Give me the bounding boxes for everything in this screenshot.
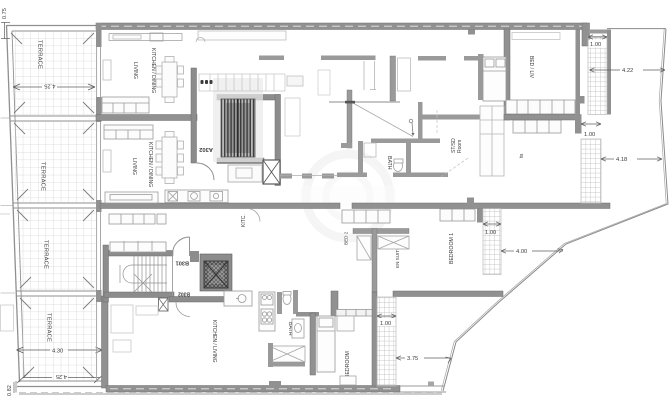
svg-text:EN SUITE: EN SUITE bbox=[395, 247, 400, 268]
svg-text:1.00: 1.00 bbox=[380, 321, 391, 327]
svg-text:TERRACE: TERRACE bbox=[40, 162, 46, 191]
svg-text:BED / LIV: BED / LIV bbox=[528, 56, 534, 79]
svg-text:B301: B301 bbox=[176, 260, 189, 266]
svg-text:BEDROOM: BEDROOM bbox=[345, 351, 351, 378]
svg-text:TERRACE: TERRACE bbox=[46, 313, 52, 342]
svg-text:1.00: 1.00 bbox=[584, 132, 595, 138]
svg-text:4.25: 4.25 bbox=[56, 373, 67, 379]
svg-text:LIVING: LIVING bbox=[131, 158, 137, 175]
svg-text:KITCHEN / LIVING: KITCHEN / LIVING bbox=[211, 320, 217, 363]
svg-text:4.00: 4.00 bbox=[516, 249, 527, 255]
svg-text:TERRACE: TERRACE bbox=[43, 240, 49, 269]
svg-text:BEDROOM 1: BEDROOM 1 bbox=[449, 233, 455, 264]
svg-text:B302: B302 bbox=[178, 291, 190, 297]
svg-text:4.18: 4.18 bbox=[616, 157, 627, 163]
svg-text:BED 2: BED 2 bbox=[344, 231, 349, 245]
svg-text:0.75: 0.75 bbox=[2, 8, 8, 19]
svg-text:1.00: 1.00 bbox=[485, 230, 496, 236]
svg-text:KITCHEN / DINING: KITCHEN / DINING bbox=[150, 48, 156, 93]
svg-text:KITC.: KITC. bbox=[241, 214, 247, 227]
svg-text:TERRACE: TERRACE bbox=[37, 40, 43, 69]
svg-text:LIVING: LIVING bbox=[132, 62, 138, 79]
svg-text:KITCHEN / DINING: KITCHEN / DINING bbox=[147, 142, 153, 187]
svg-text:4.30: 4.30 bbox=[52, 348, 63, 354]
svg-text:Room: Room bbox=[457, 140, 463, 153]
svg-text:BATH: BATH bbox=[386, 156, 392, 170]
svg-text:0.82: 0.82 bbox=[7, 385, 13, 396]
svg-text:A302: A302 bbox=[199, 146, 213, 152]
svg-text:1.00: 1.00 bbox=[590, 42, 601, 48]
svg-text:fB: fB bbox=[519, 154, 524, 158]
svg-text:4.22: 4.22 bbox=[622, 68, 633, 74]
svg-text:4.25: 4.25 bbox=[44, 83, 55, 89]
svg-text:3.75: 3.75 bbox=[407, 356, 418, 362]
